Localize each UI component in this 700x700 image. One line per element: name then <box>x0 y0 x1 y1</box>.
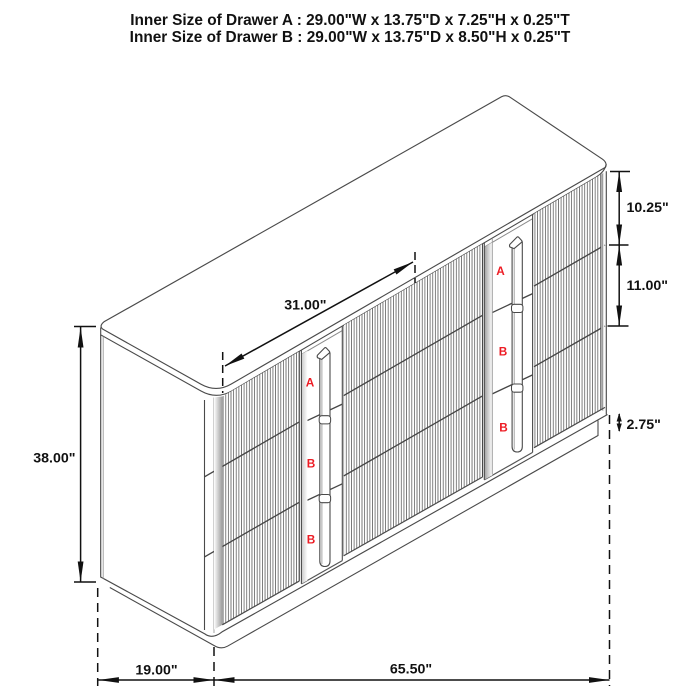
svg-text:Inner Size of Drawer B : 29.00: Inner Size of Drawer B : 29.00"W x 13.75… <box>130 29 571 46</box>
svg-text:B: B <box>499 344 508 358</box>
svg-text:A: A <box>496 264 505 278</box>
svg-text:65.50": 65.50" <box>390 661 432 677</box>
svg-text:B: B <box>307 456 316 470</box>
svg-text:11.00": 11.00" <box>627 278 668 294</box>
svg-text:A: A <box>306 375 315 389</box>
svg-text:B: B <box>499 420 508 434</box>
svg-text:Inner Size of Drawer A : 29.00: Inner Size of Drawer A : 29.00"W x 13.75… <box>130 12 570 29</box>
svg-text:B: B <box>307 532 316 546</box>
svg-text:10.25": 10.25" <box>627 200 669 216</box>
svg-text:19.00": 19.00" <box>135 662 177 678</box>
svg-text:31.00": 31.00" <box>284 297 326 313</box>
svg-text:38.00": 38.00" <box>33 451 75 467</box>
svg-text:2.75": 2.75" <box>627 417 661 433</box>
